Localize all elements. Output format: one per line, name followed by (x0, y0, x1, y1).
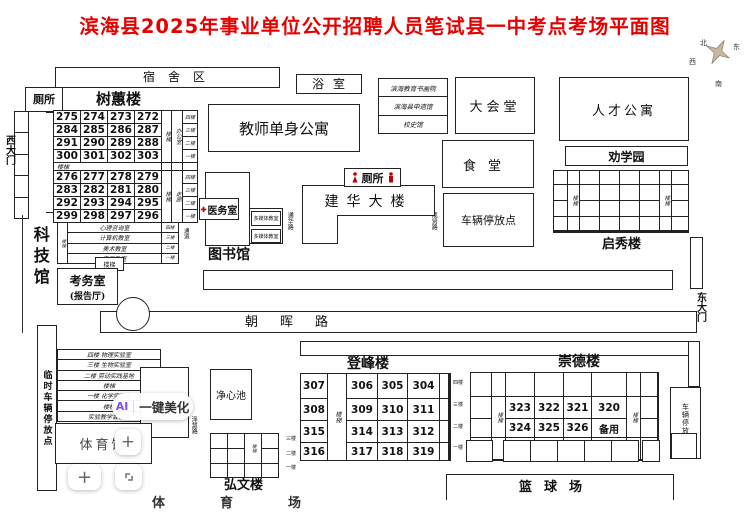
room-cell: 278 (108, 171, 134, 183)
room-cell: 273 (108, 111, 134, 123)
ai-badge: AI (116, 400, 129, 413)
floor-cell: 三楼 (162, 233, 178, 242)
cell (554, 171, 567, 184)
talent-apartment-label: 人才公寓 (592, 100, 656, 119)
floor-cell: 三楼 (183, 184, 197, 196)
annex-stack: 滨海教育书画院 滨海县申遗馆 校史馆 (378, 78, 448, 134)
cell (580, 201, 599, 216)
cell (568, 171, 579, 184)
west-boundary-line (22, 215, 23, 333)
cell (262, 464, 278, 477)
room-cell: 311 (408, 399, 439, 420)
road-zehui-label: 泽慧路 (190, 416, 196, 434)
room-cell: 321 (564, 397, 591, 418)
floor-cell: 四楼 (162, 223, 178, 232)
library-label: 图书馆 (208, 248, 250, 263)
east-wall-bottom (688, 341, 700, 387)
cell (245, 464, 261, 477)
toilet-nw-label: 厕所 (33, 94, 55, 106)
room-cell: 292 (54, 197, 80, 209)
cell (506, 373, 534, 396)
room-cell: 323 (506, 397, 534, 418)
room-cell: 289 (108, 137, 134, 149)
cell (554, 185, 567, 200)
quanxue-garden-label: 劝学园 (608, 148, 644, 165)
dorm-area-label: 宿舍区 (143, 71, 218, 84)
cell (554, 217, 567, 230)
cell (640, 201, 659, 216)
floor-label: 一楼 (286, 466, 296, 471)
cell (535, 373, 563, 396)
stair-cell: 楼梯 (492, 397, 505, 437)
cell (531, 441, 557, 461)
stair-cell: 楼梯 (162, 111, 171, 162)
zhaohui-road-bar (100, 311, 697, 333)
road-bar-lower (300, 341, 690, 356)
cell (600, 185, 619, 200)
cell (440, 399, 448, 420)
cell (492, 373, 505, 396)
cell (15, 155, 28, 175)
cell (15, 133, 28, 153)
walkway-bar (203, 270, 673, 290)
room-cell: 284 (54, 124, 80, 136)
beautify-label: 一键美化 (139, 397, 189, 416)
shed-box (642, 440, 660, 462)
room-cell: 318 (378, 443, 407, 460)
cell (600, 201, 619, 216)
teacher-apartment-box: 教师单身公寓 (208, 104, 360, 152)
west-wall-strip (14, 111, 29, 219)
room-cell: 301 (81, 150, 107, 162)
floor-cell: 四楼 (183, 111, 197, 123)
room-cell: 310 (378, 399, 407, 420)
cell (660, 217, 671, 230)
floor-cell: 一楼 (183, 210, 197, 222)
kaowu-office-label: 考务室 (69, 272, 105, 289)
floor-cell: 二楼 (183, 137, 197, 149)
cell (172, 163, 182, 170)
basketball-label: 篮球场 (519, 481, 745, 495)
cell (620, 171, 639, 184)
room-cell: 293 (81, 197, 107, 209)
room-cell: 319 (408, 443, 439, 460)
temporary-parking-strip: 临时车辆停放点 (37, 325, 57, 491)
heritage-hall-label: 滨海县申遗馆 (379, 97, 447, 114)
room-cell: 325 (535, 419, 563, 437)
stair-cell: 楼梯 (568, 185, 579, 216)
floor-label: 三楼 (286, 437, 296, 442)
room-cell: 308 (301, 399, 327, 420)
stair-cell: 楼梯 (162, 171, 171, 222)
room-cell: 283 (54, 184, 80, 196)
room-cell: 287 (135, 124, 161, 136)
shed-strip (503, 440, 639, 462)
cell (580, 185, 599, 200)
dengfeng-label: 登峰楼 (347, 357, 389, 372)
room-cell: 314 (347, 421, 377, 442)
jianhua-label: 建华大楼 (325, 191, 413, 211)
basketball-court: 篮球场 (446, 474, 674, 500)
parking-mid-box: 车辆停放点 (443, 193, 534, 247)
cell (440, 443, 448, 460)
cell (504, 441, 530, 461)
room-cell: 306 (347, 374, 377, 398)
compass-south: 南 (715, 79, 722, 88)
cell (640, 217, 659, 230)
medical-room-label: 医务室 (207, 202, 237, 217)
room-cell: 280 (135, 184, 161, 196)
ai-beautify-pill[interactable]: AI 一键美化 (112, 393, 193, 420)
cell (672, 185, 688, 200)
cell (162, 163, 171, 170)
cell (211, 449, 227, 463)
office-cell: 办公室 (172, 111, 182, 162)
shuhui-label: 树蕙楼 (96, 92, 141, 108)
room-cell: 285 (81, 124, 107, 136)
west-gate-label: 西大门 (3, 135, 14, 165)
room-cell: 282 (81, 184, 107, 196)
floor-cell: 二楼 (183, 197, 197, 209)
roundabout-circle (116, 297, 150, 331)
calligraphy-academy-label: 滨海教育书画院 (379, 79, 447, 96)
room-label-cell: 计算机教室 (68, 233, 161, 242)
cell (211, 464, 227, 477)
room-cell: 324 (506, 419, 534, 437)
zhaohui-road-label: 朝晖路 (245, 316, 350, 330)
room-cell: 272 (135, 111, 161, 123)
toilet-mid-box: 厕所 (344, 168, 401, 187)
cell (600, 217, 619, 230)
cell (211, 434, 227, 448)
keji-hall-label: 科技馆 (31, 226, 48, 289)
medical-room-box: ✚ 医务室 (199, 198, 239, 220)
room-cell: 313 (378, 421, 407, 442)
toilet-mid-label: 厕所 (362, 170, 384, 186)
cell (640, 171, 659, 184)
jianhua-building-bar: 建华大楼 (302, 185, 435, 216)
temporary-parking-label: 临时车辆停放点 (41, 370, 54, 447)
room-cell: 326 (564, 419, 591, 437)
mid-stair-cell: 楼梯 (54, 163, 161, 170)
room-cell: 307 (301, 374, 327, 398)
room-cell: 317 (347, 443, 377, 460)
stair-cell: 楼梯 (245, 434, 261, 463)
room-cell: 322 (535, 397, 563, 418)
hongwen-label: 弘文楼 (224, 479, 263, 493)
canteen-label: 食堂 (463, 155, 513, 174)
compass-north: 北 (700, 39, 707, 47)
media-room-box: 多媒体教室 (251, 211, 281, 226)
dengfeng-room-grid: 307 楼梯 306 305 304 308 309 310 311 315 3… (300, 373, 451, 461)
room-cell: 299 (54, 210, 80, 222)
room-label-cell: 美术教室 (68, 244, 161, 253)
crop-button[interactable] (115, 464, 142, 490)
room-cell: 279 (135, 171, 161, 183)
cell (600, 171, 619, 184)
shed-box (466, 440, 493, 462)
qixiu-label: 启秀楼 (602, 238, 641, 252)
jianhua-building-leg (302, 215, 338, 244)
cell (620, 201, 639, 216)
stair-cell: 楼梯 (58, 223, 67, 263)
room-label-cell: 心理咨询室 (68, 223, 161, 232)
cell (228, 434, 244, 448)
cell (585, 441, 611, 461)
cell (554, 201, 567, 216)
cell (228, 464, 244, 477)
campus-map: 滨海县2025年事业单位公开招聘人员笔试县一中考点考场平面图 北 东 西 南 宿… (0, 0, 750, 529)
east-wall-top (690, 237, 703, 289)
cell (620, 217, 639, 230)
room-cell: 295 (135, 197, 161, 209)
media-room-box: 多媒体教室 (251, 229, 281, 243)
medical-cross-icon: ✚ (201, 205, 207, 214)
floor-label: 二楼 (286, 452, 296, 457)
add-button[interactable]: + (68, 464, 101, 490)
compass-west: 西 (689, 58, 696, 66)
parking-mid-label: 车辆停放点 (461, 212, 516, 228)
compass-rose: 北 东 西 南 (688, 34, 750, 90)
teacher-apartment-label: 教师单身公寓 (239, 118, 329, 139)
room-cell: 275 (54, 111, 80, 123)
floor-label: 三楼 (453, 403, 463, 408)
cell (620, 185, 639, 200)
passage-label: 通道 (182, 228, 188, 239)
crop-icon (123, 471, 135, 483)
talent-apartment-box: 人才公寓 (559, 77, 689, 141)
small-corner-box (671, 433, 697, 459)
stair-cell: 楼梯 (328, 374, 346, 460)
room-cell: 305 (378, 374, 407, 398)
room-cell: 276 (54, 171, 80, 183)
male-icon (388, 172, 394, 183)
room-cell: 300 (54, 150, 80, 162)
cell (183, 163, 197, 170)
room-cell: 274 (81, 111, 107, 123)
room-cell: 298 (81, 210, 107, 222)
room-cell: 320 (592, 397, 626, 418)
room-cell: 296 (135, 210, 161, 222)
qixiu-building-grid: 楼梯 楼梯 (553, 170, 689, 233)
cell (580, 217, 599, 230)
quanxue-garden-box: 劝学园 (565, 146, 688, 166)
pill-divider (133, 401, 134, 413)
compass-east: 东 (733, 42, 740, 51)
add-button[interactable]: + (115, 429, 141, 455)
room-cell: 304 (408, 374, 439, 398)
cell (568, 217, 579, 230)
room-cell: 281 (108, 184, 134, 196)
room-cell: 312 (408, 421, 439, 442)
sports-field-label: 体育场 (152, 497, 356, 511)
jingxin-pond-box: 净心池 (210, 369, 252, 420)
cell (627, 373, 640, 396)
female-icon (352, 172, 358, 183)
cell (440, 421, 448, 442)
room-cell: 277 (81, 171, 107, 183)
cell (660, 171, 671, 184)
jingxin-pond-label: 净心池 (216, 387, 246, 402)
chongde-label: 崇德楼 (558, 355, 600, 370)
floor-cell: 二楼 (162, 244, 178, 253)
floor-cell: 一楼 (183, 150, 197, 162)
reserve-room-cell: 备用 (592, 419, 626, 437)
cell (440, 374, 448, 398)
kaowu-office-sublabel: (报告厅) (70, 289, 106, 302)
cell (640, 185, 659, 200)
floor-label: 一楼 (453, 446, 463, 451)
cell (612, 441, 638, 461)
floor-label: 二楼 (453, 425, 463, 430)
room-cell: 291 (54, 137, 80, 149)
page-title: 滨海县2025年事业单位公开招聘人员笔试县一中考点考场平面图 (0, 17, 750, 37)
cell (672, 201, 688, 216)
cell (262, 449, 278, 463)
auditorium-box: 大会堂 (455, 77, 535, 134)
cell (580, 171, 599, 184)
room-cell: 316 (301, 443, 327, 460)
floor-label: 四楼 (453, 381, 463, 386)
floor-cell: 四楼 (183, 171, 197, 183)
bath-label: 浴室 (312, 78, 354, 91)
room-cell: 297 (108, 210, 134, 222)
cell (471, 397, 491, 418)
cell (471, 373, 491, 396)
cell (228, 449, 244, 463)
room-cell: 288 (135, 137, 161, 149)
kaowu-office-box: 考务室 (报告厅) (57, 268, 118, 305)
cell (641, 373, 657, 396)
room-cell: 294 (108, 197, 134, 209)
lab-row: 四楼 物理实验室 (58, 350, 160, 359)
cell (262, 434, 278, 448)
room-cell: 315 (301, 421, 327, 442)
room-cell: 290 (81, 137, 107, 149)
shuhui-room-table: 275 274 273 272 楼梯 办公室 四楼 284 285 286 28… (53, 110, 198, 223)
cell (641, 397, 657, 418)
room-cell: 309 (347, 399, 377, 420)
stair-cell: 楼梯 (627, 397, 640, 437)
room-cell: 286 (108, 124, 134, 136)
room-cell: 303 (135, 150, 161, 162)
canteen-box: 食堂 (442, 140, 534, 188)
room-cell: 302 (108, 150, 134, 162)
corridor-cell: 走廊 (172, 171, 182, 222)
cell (672, 171, 688, 184)
cell (15, 176, 28, 196)
auditorium-label: 大会堂 (469, 96, 520, 115)
floor-cell: 一楼 (162, 254, 178, 263)
cell (641, 419, 657, 437)
school-history-hall-label: 校史馆 (379, 116, 447, 133)
cell (558, 441, 584, 461)
cell (592, 373, 626, 396)
cell (564, 373, 591, 396)
cell (15, 112, 28, 132)
hongwen-grid: 楼梯 (210, 433, 279, 478)
cell (471, 419, 491, 437)
floor-cell: 三楼 (183, 124, 197, 136)
road-tonghua-label: 通华路 (286, 212, 292, 230)
cell (672, 217, 688, 230)
stair-cell: 楼梯 (660, 185, 671, 216)
